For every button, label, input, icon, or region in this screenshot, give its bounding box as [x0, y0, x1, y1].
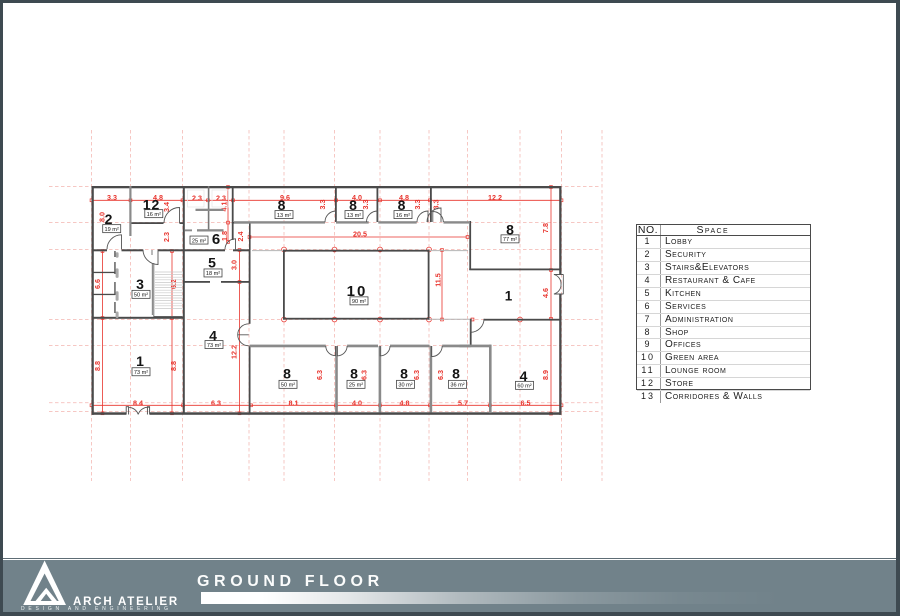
svg-text:2.3: 2.3 — [162, 232, 171, 242]
svg-text:50 m²: 50 m² — [281, 383, 295, 389]
svg-text:8.4: 8.4 — [133, 399, 143, 408]
svg-text:1: 1 — [136, 353, 144, 369]
svg-text:20.5: 20.5 — [353, 230, 367, 239]
svg-text:5: 5 — [208, 255, 216, 271]
svg-text:3.3: 3.3 — [318, 200, 327, 210]
svg-text:1.8: 1.8 — [220, 231, 229, 241]
svg-text:3: 3 — [136, 276, 144, 292]
svg-text:2.3: 2.3 — [216, 194, 226, 203]
svg-text:50 m²: 50 m² — [134, 293, 148, 299]
svg-text:2.3: 2.3 — [192, 194, 202, 203]
svg-text:5.7: 5.7 — [458, 399, 468, 408]
svg-text:3.3: 3.3 — [413, 200, 422, 210]
svg-text:18 m²: 18 m² — [206, 271, 220, 277]
svg-text:36 m²: 36 m² — [450, 383, 464, 389]
svg-text:4.0: 4.0 — [352, 399, 362, 408]
svg-text:8: 8 — [350, 366, 358, 382]
svg-text:12.2: 12.2 — [229, 345, 238, 359]
svg-text:16 m²: 16 m² — [396, 213, 410, 219]
svg-text:8: 8 — [283, 366, 291, 382]
svg-text:3.3: 3.3 — [361, 200, 370, 210]
svg-text:6.3: 6.3 — [436, 370, 445, 380]
svg-text:13 m²: 13 m² — [347, 213, 361, 219]
svg-text:3.0: 3.0 — [229, 260, 238, 270]
svg-text:2.4: 2.4 — [236, 232, 245, 242]
svg-text:8.8: 8.8 — [169, 361, 178, 371]
svg-text:8.9: 8.9 — [541, 370, 550, 380]
svg-text:3.3: 3.3 — [107, 193, 117, 202]
svg-text:25 m²: 25 m² — [192, 238, 206, 244]
svg-text:6.3: 6.3 — [211, 399, 221, 408]
svg-text:8: 8 — [400, 366, 408, 382]
svg-text:4.6: 4.6 — [541, 288, 550, 298]
svg-text:4.8: 4.8 — [400, 399, 410, 408]
svg-text:6.6: 6.6 — [93, 279, 102, 289]
svg-text:11.5: 11.5 — [434, 273, 443, 287]
svg-text:8: 8 — [452, 366, 460, 382]
svg-text:77 m²: 77 m² — [503, 237, 517, 243]
svg-text:73 m²: 73 m² — [134, 370, 148, 376]
svg-text:16 m²: 16 m² — [147, 212, 161, 218]
svg-text:7.8: 7.8 — [541, 223, 550, 233]
svg-text:25 m²: 25 m² — [349, 383, 363, 389]
svg-text:6.3: 6.3 — [315, 370, 324, 380]
svg-text:1: 1 — [505, 289, 513, 304]
svg-text:12.2: 12.2 — [488, 193, 502, 202]
svg-text:60 m²: 60 m² — [517, 384, 531, 390]
svg-text:6.3: 6.3 — [360, 370, 369, 380]
svg-text:6.5: 6.5 — [521, 399, 531, 408]
svg-text:6.3: 6.3 — [412, 370, 421, 380]
svg-text:90 m²: 90 m² — [352, 299, 366, 305]
svg-text:30 m²: 30 m² — [398, 383, 412, 389]
svg-text:19 m²: 19 m² — [105, 227, 119, 233]
svg-text:8.8: 8.8 — [93, 361, 102, 371]
svg-text:8.1: 8.1 — [289, 399, 299, 408]
svg-text:73 m²: 73 m² — [207, 343, 221, 349]
svg-text:6: 6 — [212, 231, 220, 248]
svg-text:13 m²: 13 m² — [277, 213, 291, 219]
